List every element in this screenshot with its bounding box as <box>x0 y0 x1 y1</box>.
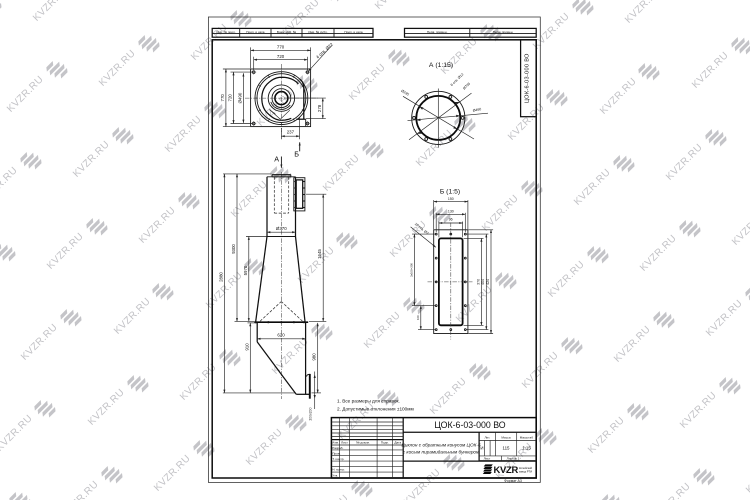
svg-text:100: 100 <box>416 315 420 320</box>
svg-text:ЦОК-6-03-000 ВО: ЦОК-6-03-000 ВО <box>525 53 531 103</box>
svg-text:А: А <box>274 154 279 163</box>
svg-text:Б: Б <box>294 149 299 158</box>
svg-text:Лист: Лист <box>341 441 348 445</box>
svg-text:720: 720 <box>277 54 285 59</box>
svg-text:Ø370: Ø370 <box>276 226 287 231</box>
svg-text:910: 910 <box>244 343 249 351</box>
svg-text:370: 370 <box>476 279 480 285</box>
svg-text:Ø705: Ø705 <box>462 82 471 91</box>
svg-text:Дата: Дата <box>394 441 401 445</box>
svg-text:Подп. и дата: Подп. и дата <box>246 30 265 34</box>
svg-text:Инв. № дубл.: Инв. № дубл. <box>308 30 327 34</box>
svg-text:770: 770 <box>220 94 225 102</box>
svg-text:5970: 5970 <box>243 265 248 275</box>
svg-text:Н. контр.: Н. контр. <box>332 468 345 472</box>
svg-text:с косым пирамидальным бункеро: с косым пирамидальным бункером <box>403 450 480 455</box>
svg-text:96: 96 <box>449 218 453 222</box>
svg-text:Циклон с обратным конусом ЦОК-: Циклон с обратным конусом ЦОК-6 <box>401 443 481 448</box>
svg-text:1645: 1645 <box>317 249 322 259</box>
svg-text:150: 150 <box>448 197 454 201</box>
svg-text:Копейский: Копейский <box>519 466 533 470</box>
svg-text:Взам. инв. №: Взам. инв. № <box>277 30 297 34</box>
svg-text:Перв. примен.: Перв. примен. <box>427 30 448 34</box>
svg-text:10 отв. Ø7: 10 отв. Ø7 <box>414 222 430 236</box>
svg-text:Ø490: Ø490 <box>237 92 242 103</box>
svg-text:Лист: Лист <box>484 456 491 460</box>
svg-text:278: 278 <box>317 104 322 112</box>
svg-text:Формат А3: Формат А3 <box>504 479 522 483</box>
svg-text:Листов 1: Листов 1 <box>507 456 520 460</box>
svg-text:Изм.: Изм. <box>332 441 339 445</box>
svg-text:Разраб.: Разраб. <box>332 446 343 450</box>
svg-text:6 отв. Ø12: 6 отв. Ø12 <box>450 72 465 87</box>
svg-text:Подп. и дата: Подп. и дата <box>344 30 363 34</box>
svg-text:2880: 2880 <box>218 272 223 282</box>
svg-text:1. Все размеры для справок.: 1. Все размеры для справок. <box>337 399 400 404</box>
svg-text:Лит.: Лит. <box>484 436 490 440</box>
svg-text:2. Допустимые отклонения ±10: 2. Допустимые отклонения ±100мм <box>337 406 414 411</box>
svg-text:Ø235: Ø235 <box>400 89 409 97</box>
svg-text:200х200: 200х200 <box>309 407 313 420</box>
svg-text:Масштаб: Масштаб <box>520 436 533 440</box>
svg-text:1:15: 1:15 <box>522 446 531 451</box>
svg-text:3х100=300: 3х100=300 <box>409 263 413 277</box>
svg-text:№ докум.: № докум. <box>356 441 370 445</box>
svg-text:KVZR: KVZR <box>494 464 519 475</box>
svg-text:завод РТИ: завод РТИ <box>519 469 532 473</box>
svg-text:Т. контр.: Т. контр. <box>332 457 344 461</box>
svg-text:Масса: Масса <box>501 436 510 440</box>
svg-text:Утв.: Утв. <box>332 473 338 477</box>
svg-text:ЦОК-6-03-000 ВО: ЦОК-6-03-000 ВО <box>434 420 505 430</box>
svg-text:А (1:15): А (1:15) <box>429 62 453 69</box>
svg-text:9300: 9300 <box>231 244 236 254</box>
svg-text:620: 620 <box>277 332 285 337</box>
svg-text:404: 404 <box>481 279 485 285</box>
svg-text:Подп.: Подп. <box>381 441 389 445</box>
svg-text:770: 770 <box>277 45 285 50</box>
svg-text:Б (1:5): Б (1:5) <box>440 189 460 196</box>
svg-text:424: 424 <box>486 279 490 285</box>
svg-text:Пров.: Пров. <box>332 451 340 455</box>
svg-text:Перв. примен.: Перв. примен. <box>493 30 514 34</box>
svg-text:115: 115 <box>503 446 511 451</box>
svg-text:И: И <box>480 446 483 451</box>
svg-text:Ø460: Ø460 <box>472 107 481 113</box>
svg-text:Инв. № подл.: Инв. № подл. <box>216 30 235 34</box>
svg-text:980: 980 <box>312 353 317 361</box>
svg-text:4 отв. Ø22: 4 отв. Ø22 <box>315 41 334 59</box>
svg-text:720: 720 <box>228 94 233 102</box>
svg-text:130: 130 <box>448 210 454 214</box>
svg-text:237: 237 <box>287 129 295 134</box>
